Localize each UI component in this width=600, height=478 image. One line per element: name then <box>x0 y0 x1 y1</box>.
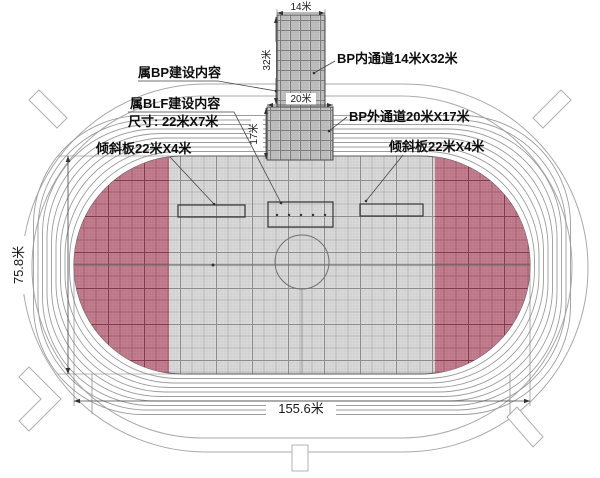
label-bp-inner-channel: BP内通道14米X32米 <box>337 51 459 66</box>
label-bp-outer-channel: BP外通道20米X17米 <box>349 109 471 124</box>
dim-text-75-8m: 75.8米 <box>11 246 26 284</box>
ramp-bottom-right <box>507 407 543 447</box>
bottom-exit-tab <box>292 445 308 471</box>
label-tilt-board-left: 倾斜板22米X4米 <box>95 141 192 156</box>
dim-text-20m: 20米 <box>290 92 311 105</box>
ramp-top-right <box>533 90 571 128</box>
dim-text-14m: 14米 <box>290 0 311 13</box>
survey-point <box>212 264 215 267</box>
dim-text-32m: 32米 <box>260 49 273 70</box>
ramp-top-left <box>29 90 67 128</box>
label-blf-size: 尺寸: 22米X7米 <box>128 114 219 129</box>
label-belongs-bp: 属BP建设内容 <box>138 65 221 80</box>
dim-inner-channel-width: 14米 <box>277 0 325 16</box>
bp-outer-channel-rect <box>267 107 333 160</box>
ramp-bottom-left-chevron <box>19 367 61 431</box>
label-belongs-blf: 属BLF建设内容 <box>130 96 220 111</box>
stadium-plan-canvas: 14米 32米 20米 17米 75.8米 <box>0 0 600 478</box>
leader-belongs-bp <box>138 81 276 91</box>
site-plan-drawing: 14米 32米 20米 17米 75.8米 <box>0 0 600 478</box>
dim-text-155-6m: 155.6米 <box>278 401 324 416</box>
label-tilt-board-right: 倾斜板22米X4米 <box>388 139 485 154</box>
